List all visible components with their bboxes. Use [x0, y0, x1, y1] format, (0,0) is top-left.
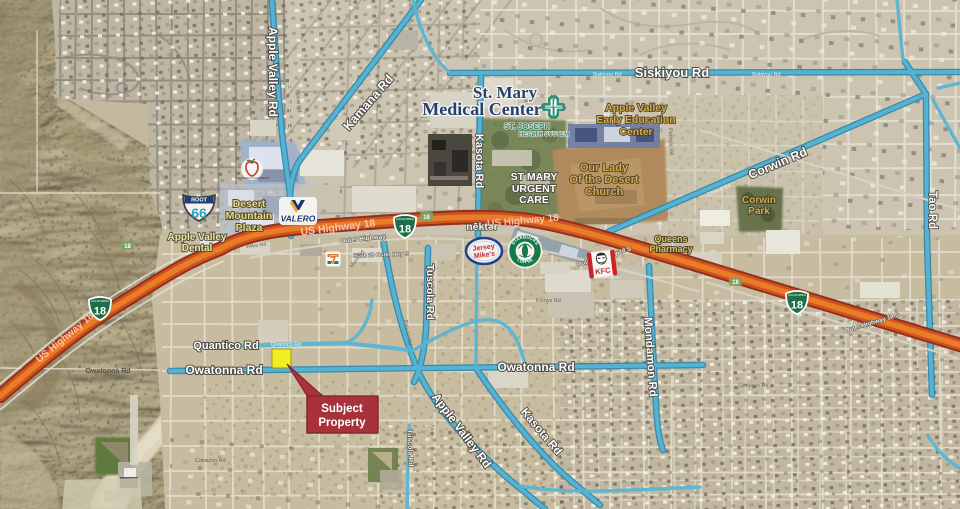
svg-text:Siskiyou Rd: Siskiyou Rd: [635, 65, 709, 80]
svg-text:Our Lady: Our Lady: [580, 162, 629, 174]
svg-text:Desert: Desert: [233, 198, 266, 210]
svg-text:ST MARY: ST MARY: [511, 171, 558, 183]
svg-text:Pharmacy: Pharmacy: [649, 244, 692, 254]
svg-text:Siskiyou Rd: Siskiyou Rd: [592, 72, 621, 78]
svg-text:ROOT: ROOT: [191, 198, 208, 204]
svg-text:Siskiyou Rd: Siskiyou Rd: [751, 72, 780, 78]
svg-text:Of the Desert: Of the Desert: [569, 174, 638, 186]
svg-text:Apple Valley Rd: Apple Valley Rd: [266, 27, 280, 117]
svg-text:Cabazon Rd: Cabazon Rd: [195, 458, 226, 464]
svg-text:CALIFORNIA: CALIFORNIA: [396, 217, 414, 221]
svg-text:18: 18: [94, 306, 106, 318]
svg-text:Quantico Rd: Quantico Rd: [193, 340, 258, 352]
svg-text:Symeron Rd: Symeron Rd: [738, 383, 769, 389]
svg-text:Quantico Rd: Quantico Rd: [271, 342, 302, 348]
svg-text:CARE: CARE: [519, 194, 549, 206]
svg-text:Owatonna Rd: Owatonna Rd: [85, 368, 130, 375]
svg-text:18: 18: [124, 244, 131, 250]
svg-text:18: 18: [732, 280, 739, 286]
svg-text:Apple Valley: Apple Valley: [168, 232, 227, 243]
svg-text:Park: Park: [748, 206, 770, 217]
svg-text:CALIFORNIA: CALIFORNIA: [788, 293, 806, 297]
svg-text:18: 18: [423, 215, 430, 221]
svg-text:Plaza: Plaza: [236, 222, 263, 234]
svg-text:Queens: Queens: [654, 234, 687, 244]
svg-text:Tuscola Rd: Tuscola Rd: [406, 429, 414, 466]
svg-text:Apple Valley: Apple Valley: [605, 102, 667, 114]
svg-text:Medical Center: Medical Center: [422, 99, 541, 119]
svg-text:Tuscola Rd: Tuscola Rd: [424, 264, 436, 320]
svg-text:Property: Property: [318, 417, 366, 429]
svg-text:Esaws Rd: Esaws Rd: [536, 298, 561, 304]
svg-text:Kasota Rd: Kasota Rd: [473, 134, 485, 188]
svg-text:Subject: Subject: [321, 403, 363, 415]
svg-text:Owatonna Rd: Owatonna Rd: [185, 363, 262, 377]
svg-text:66: 66: [191, 205, 207, 221]
svg-text:HEALTH SYSTEM: HEALTH SYSTEM: [519, 132, 569, 138]
svg-text:Tao Rd: Tao Rd: [926, 191, 938, 229]
svg-text:ST. JOSEPH: ST. JOSEPH: [504, 122, 550, 131]
svg-text:Center: Center: [619, 126, 652, 138]
svg-text:Dental: Dental: [182, 243, 213, 254]
svg-text:Early Education: Early Education: [596, 114, 675, 126]
svg-text:Corwin: Corwin: [742, 195, 776, 206]
svg-text:Pamela Rd: Pamela Rd: [667, 128, 674, 155]
svg-text:18: 18: [399, 224, 411, 236]
svg-text:CHAMBER of COMMERCE: CHAMBER of COMMERCE: [235, 176, 270, 180]
svg-text:VALERO: VALERO: [281, 214, 316, 224]
svg-text:Owatonna Rd: Owatonna Rd: [497, 360, 574, 374]
svg-text:Mountain: Mountain: [226, 210, 273, 222]
svg-text:Church: Church: [585, 186, 624, 198]
svg-text:18: 18: [791, 300, 803, 312]
svg-text:CALIFORNIA: CALIFORNIA: [91, 299, 109, 303]
